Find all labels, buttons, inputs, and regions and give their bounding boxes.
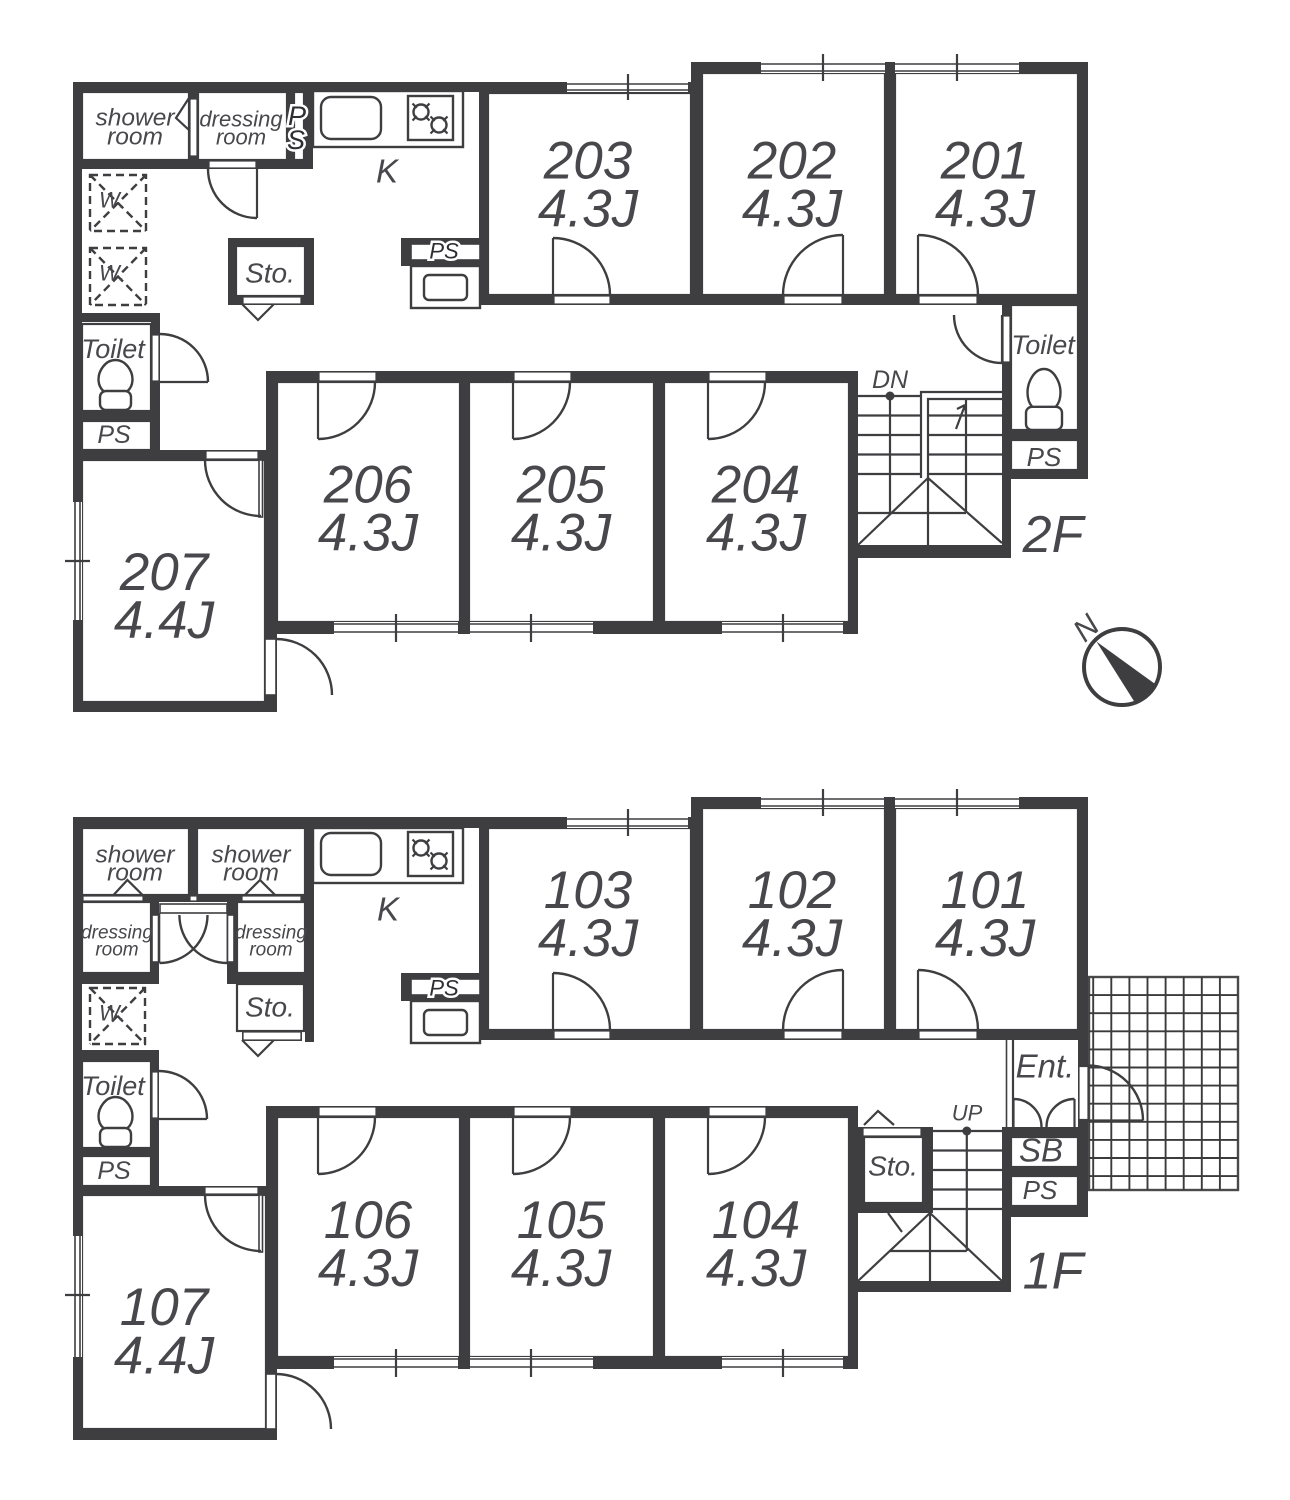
svg-text:Toilet: Toilet [81, 1071, 146, 1101]
svg-text:Sto.: Sto. [245, 258, 295, 289]
svg-text:Sto.: Sto. [245, 992, 295, 1023]
svg-text:4.3J: 4.3J [538, 180, 639, 239]
svg-text:PS: PS [1027, 442, 1062, 472]
svg-text:4.3J: 4.3J [706, 504, 807, 563]
svg-text:K: K [376, 153, 400, 190]
svg-text:K: K [377, 891, 401, 928]
svg-text:Toilet: Toilet [81, 334, 146, 364]
svg-text:DN: DN [872, 366, 909, 394]
svg-text:room: room [249, 940, 292, 961]
svg-text:4.3J: 4.3J [511, 1239, 612, 1298]
svg-text:PS: PS [429, 239, 459, 264]
svg-text:4.3J: 4.3J [742, 909, 843, 968]
svg-text:W.: W. [99, 1001, 125, 1026]
svg-text:room: room [95, 940, 138, 961]
svg-text:4.3J: 4.3J [935, 180, 1036, 239]
svg-text:N: N [1066, 607, 1107, 648]
svg-text:room: room [216, 125, 266, 150]
svg-text:4.3J: 4.3J [706, 1239, 807, 1298]
svg-text:room: room [107, 124, 163, 151]
svg-text:2F: 2F [1022, 506, 1087, 564]
svg-text:Ent.: Ent. [1016, 1048, 1075, 1085]
svg-text:Toilet: Toilet [1011, 330, 1076, 360]
svg-text:UP: UP [952, 1101, 983, 1126]
svg-text:4.3J: 4.3J [318, 1239, 419, 1298]
svg-text:PS: PS [97, 1157, 131, 1185]
svg-text:W.: W. [99, 261, 125, 286]
svg-text:W.: W. [99, 188, 125, 213]
svg-text:Sto.: Sto. [868, 1151, 918, 1182]
svg-text:PS: PS [429, 976, 459, 1001]
svg-text:4.3J: 4.3J [538, 909, 639, 968]
svg-text:4.3J: 4.3J [318, 504, 419, 563]
svg-text:S: S [287, 125, 305, 155]
svg-text:4.4J: 4.4J [114, 1327, 215, 1386]
svg-text:room: room [223, 860, 279, 887]
svg-text:PS: PS [97, 421, 131, 449]
svg-text:4.3J: 4.3J [742, 180, 843, 239]
svg-text:room: room [107, 860, 163, 887]
svg-text:PS: PS [1023, 1175, 1058, 1205]
svg-text:4.4J: 4.4J [114, 591, 215, 650]
svg-text:4.3J: 4.3J [511, 504, 612, 563]
svg-text:4.3J: 4.3J [935, 909, 1036, 968]
svg-text:SB: SB [1019, 1132, 1063, 1169]
svg-text:1F: 1F [1023, 1243, 1087, 1301]
